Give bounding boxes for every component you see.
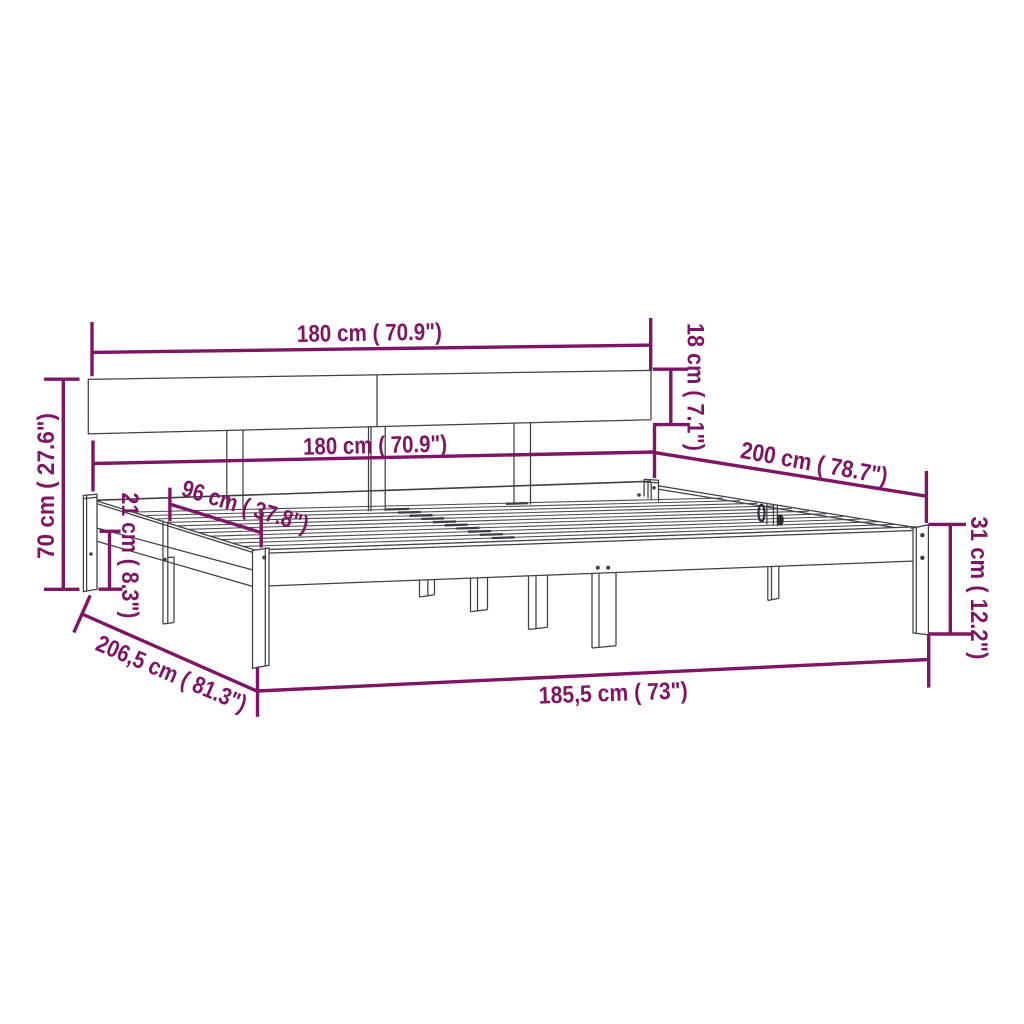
svg-text:31 cm ( 12.2"): 31 cm ( 12.2") — [965, 517, 992, 660]
svg-text:21 cm ( 8.3"): 21 cm ( 8.3") — [116, 493, 143, 619]
svg-text:180 cm ( 70.9"): 180 cm ( 70.9") — [303, 431, 448, 461]
svg-text:18 cm ( 7.1"): 18 cm ( 7.1") — [682, 323, 709, 451]
svg-text:70 cm ( 27.6"): 70 cm ( 27.6") — [33, 413, 60, 559]
svg-text:185,5 cm ( 73"): 185,5 cm ( 73") — [538, 677, 688, 709]
svg-text:180 cm ( 70.9"): 180 cm ( 70.9") — [297, 319, 442, 348]
